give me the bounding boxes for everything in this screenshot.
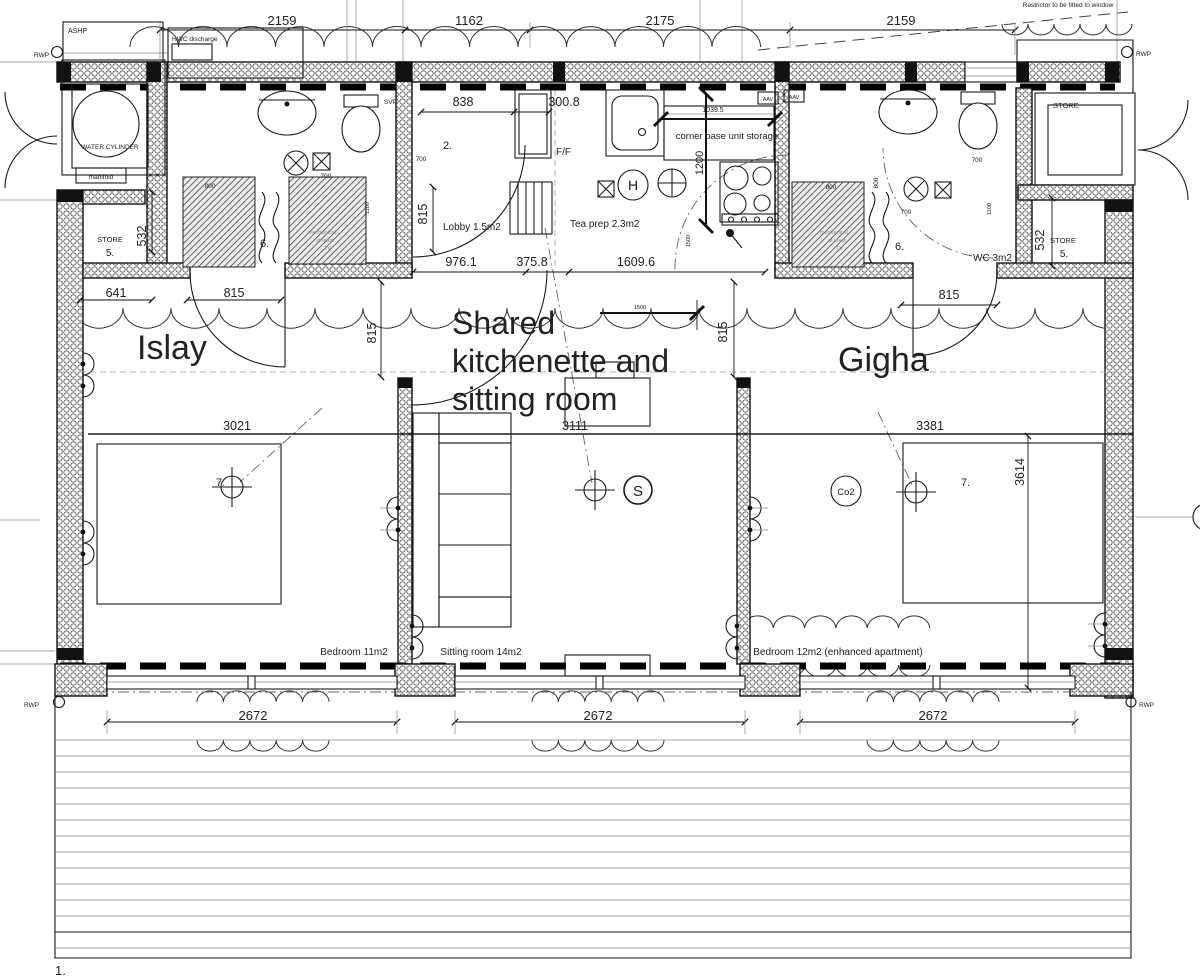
dim-1039-5: 1039.5: [702, 107, 724, 114]
hob-burner-3: [724, 193, 746, 215]
dim-3381: 3381: [916, 419, 944, 433]
dim-700-b: 700: [321, 173, 332, 180]
basin-right: [879, 90, 937, 134]
store-right-label: STORE: [1050, 236, 1076, 245]
hob-burner-2: [753, 167, 771, 185]
hob-knob-strip: [722, 214, 778, 225]
manifold-label: manifold: [89, 174, 114, 181]
dim-700-a: 700: [416, 156, 427, 163]
store-top-right: [1035, 93, 1135, 185]
top-window: [965, 62, 1017, 82]
rwp-label-tr: RWP: [1136, 51, 1151, 58]
bed-left: [97, 444, 281, 604]
bottom-pier-1: [55, 664, 107, 696]
bedroom1-sitting-wall: [398, 378, 412, 664]
kitchen-partition-wall: [775, 62, 789, 270]
store-topright-label: STORE: [1053, 101, 1079, 110]
smoke-detector-letter: S: [633, 483, 643, 500]
islay-entrance-wall-a: [83, 263, 190, 278]
aav-label-1: AAV: [763, 97, 774, 103]
shower-screen-left: [259, 192, 265, 263]
dim-2672-a: 2672: [239, 708, 268, 723]
sofa-back: [413, 413, 439, 627]
wc-pan-right: [959, 103, 997, 149]
dim-1200: 1200: [694, 151, 706, 175]
gigha-entrance-wall-b: [997, 263, 1133, 278]
store-cross-wall: [1018, 185, 1133, 200]
dim-top-2175: 2175: [646, 13, 675, 28]
shower-tray-left-1: [183, 177, 255, 267]
store-partition-wall: [1016, 88, 1032, 278]
dim-1500-h: 1500: [634, 305, 646, 311]
ref-2: 2.: [443, 140, 452, 152]
rwp-label-br: RWP: [1139, 702, 1154, 709]
store-left-wall: [83, 190, 145, 204]
sitting-room-label: Sitting room 14m2: [440, 647, 522, 658]
lobby-partition-wall: [396, 62, 412, 274]
bathroom-left: [183, 91, 380, 267]
bottom-pier-3: [740, 664, 800, 696]
rwp-label-tl: RWP: [34, 52, 49, 59]
deck-boards: [55, 692, 1131, 958]
store-room-outline: [1035, 93, 1135, 185]
dim-top-right: 2159: [887, 13, 916, 28]
svp-label: SVP: [384, 99, 397, 106]
sofa-arm-bottom: [439, 597, 511, 627]
hob-burner-4: [754, 195, 770, 211]
dim-3111: 3111: [562, 419, 588, 433]
lobby-label: Lobby 1.5m2: [443, 222, 501, 233]
ref-6-left: 6.: [260, 238, 269, 250]
fridge-freezer: [515, 90, 551, 158]
shower-screen-right: [869, 192, 875, 263]
right-double-door-leaf-bottom: [1138, 150, 1188, 200]
bedroom-right-label: Bedroom 12m2 (enhanced apartment): [753, 647, 923, 658]
ceiling-symbols: [212, 467, 936, 512]
ref-1: 1.: [55, 963, 66, 978]
corner-unit-label: corner base unit storage: [676, 131, 778, 142]
kitchen-door-swing: [675, 155, 788, 270]
floorplan-drawing: 2159 1162 2175 2159 Restrictor to be fit…: [0, 0, 1200, 978]
mech-note-right-1: mechanical: [820, 230, 848, 236]
left-external-wall: [57, 190, 83, 690]
dim-1100-right: 1100: [987, 203, 993, 215]
ref-5-right: 5.: [1060, 249, 1068, 260]
top-external-wall: [57, 62, 965, 82]
dim-1609-6: 1609.6: [617, 255, 655, 269]
right-double-door-leaf-top: [1138, 100, 1188, 150]
cylinder-partition-wall: [147, 62, 167, 267]
dim-3614: 3614: [1013, 458, 1027, 486]
rwp-top-right: [1122, 47, 1133, 58]
wc-cistern-right: [961, 92, 995, 104]
rwp-label-bl: RWP: [24, 702, 39, 709]
dim-838: 838: [453, 95, 474, 109]
mech-note-right-3: TV: [836, 246, 843, 252]
bench-seat: [510, 182, 552, 234]
dim-375-8: 375.8: [516, 255, 547, 269]
ashp-label: ASHP: [68, 28, 87, 35]
dim-top-left: 2159: [268, 13, 297, 28]
bedroom-left-label: Bedroom 11m2: [320, 647, 388, 658]
restrictor-leader-line: [758, 12, 1128, 50]
dim-815-gigha: 815: [716, 322, 730, 343]
rwp-top-left: [52, 47, 63, 58]
unit-label-shared-1: Shared: [452, 305, 555, 341]
dim-641: 641: [106, 286, 127, 300]
dim-3021: 3021: [223, 419, 251, 433]
unit-label-shared-2: kitchenette and: [452, 343, 669, 379]
mech-note-right-2: at least: [828, 238, 846, 244]
islay-entrance-wall-b: [285, 263, 412, 278]
shower-tray-right: [792, 182, 864, 267]
kitchenette: [510, 90, 804, 248]
dim-800-v: 800: [873, 177, 880, 188]
dim-532-left: 532: [135, 226, 149, 247]
hob-burner-1: [724, 166, 748, 190]
unit-label-shared-3: sitting room: [452, 381, 617, 417]
dim-800-b: 800: [826, 184, 837, 191]
mech-note-left-2: at least: [316, 238, 334, 244]
basin-left: [258, 91, 316, 135]
dim-2672-b: 2672: [584, 708, 613, 723]
dim-532-right: 532: [1033, 230, 1047, 251]
ff-label: F/F: [556, 147, 571, 158]
bottom-pier-2: [395, 664, 455, 696]
leader-to-light-right: [878, 412, 913, 487]
dim-815-right: 815: [939, 288, 960, 302]
aav-label-2: AAV: [789, 95, 800, 101]
dim-976-1: 976.1: [445, 255, 476, 269]
shower-screen-right-2: [883, 192, 889, 263]
floor-plan-page: 2159 1162 2175 2159 Restrictor to be fit…: [0, 0, 1200, 978]
dim-815-lobby: 815: [416, 204, 430, 225]
wc-pan-left: [342, 106, 380, 152]
heat-detector-letter: H: [628, 177, 638, 193]
dim-815-left: 815: [224, 286, 245, 300]
dim-2672-c: 2672: [919, 708, 948, 723]
mech-note-left-3: TV: [324, 246, 331, 252]
sofa-arm-top: [439, 413, 511, 443]
unit-label-islay: Islay: [137, 329, 207, 367]
ref-7-left: 7.: [216, 477, 225, 489]
grid-reference-bubble: [1193, 504, 1200, 530]
dim-800-a: 800: [205, 183, 216, 190]
dim-700-c: 700: [972, 157, 983, 164]
store-left-label: STORE: [97, 235, 123, 244]
ref-6-right: 6.: [895, 241, 904, 253]
dim-300-8: 300.8: [548, 95, 579, 109]
dim-1100-left: 1100: [365, 202, 371, 214]
bathroom-left-door-swing: [413, 145, 525, 257]
dim-1500-v: 1500: [686, 235, 692, 247]
water-cylinder-label: WATER CYLINDER: [81, 144, 139, 151]
ref-5-left: 5.: [106, 248, 114, 259]
ref-7-right: 7.: [961, 477, 970, 489]
wc-cistern-left: [344, 95, 378, 107]
restrictor-note: Restrictor to be fitted to window: [1023, 2, 1114, 9]
dim-815-islay: 815: [365, 323, 379, 344]
dim-top-1162: 1162: [455, 13, 483, 28]
unit-label-gigha: Gigha: [838, 341, 929, 379]
bed-right: [903, 443, 1103, 603]
shower-screen-left-2: [273, 192, 279, 263]
dim-700-d: 700: [901, 209, 912, 216]
tea-prep-label: Tea prep 2.3m2: [570, 219, 640, 230]
hwc-label: HWC discharge: [172, 36, 218, 43]
mech-note-left-1: mechanical: [308, 230, 336, 236]
sofa-cushions: [439, 443, 511, 597]
sitting-bedroom2-wall: [737, 378, 750, 664]
co2-detector-letter: Co2: [837, 487, 854, 498]
wc-label: WC 3m2: [973, 253, 1012, 264]
bottom-pier-4: [1070, 664, 1133, 696]
kitchen-sink-bowl: [612, 96, 658, 150]
